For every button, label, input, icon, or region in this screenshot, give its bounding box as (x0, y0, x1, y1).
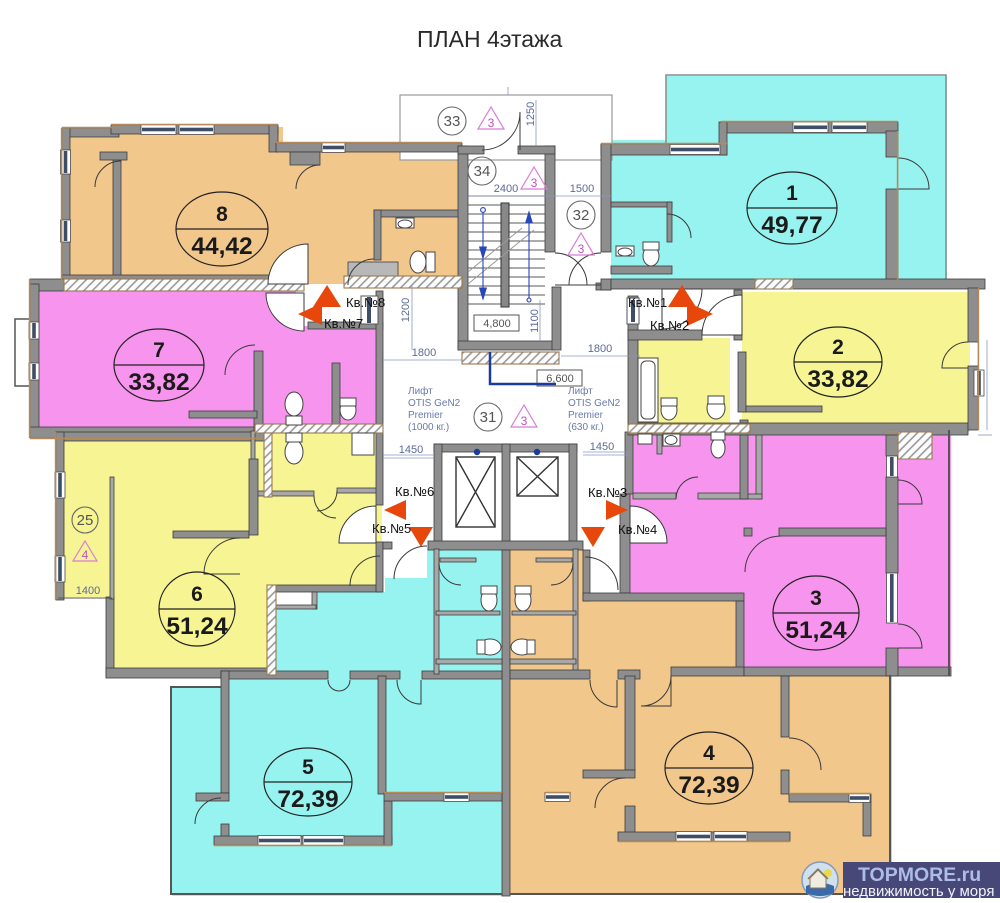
svg-text:1100: 1100 (529, 309, 541, 333)
svg-text:Premier: Premier (408, 410, 444, 421)
svg-text:72,39: 72,39 (678, 772, 739, 799)
svg-text:Premier: Premier (568, 410, 604, 421)
svg-text:OTIS GeN2: OTIS GeN2 (568, 398, 621, 409)
svg-text:Лифт: Лифт (568, 385, 593, 397)
svg-text:4,800: 4,800 (483, 318, 511, 330)
svg-text:1200: 1200 (400, 298, 412, 322)
svg-text:3: 3 (488, 116, 495, 130)
svg-text:2400: 2400 (494, 183, 518, 195)
svg-text:5: 5 (302, 756, 314, 779)
svg-text:Кв.№1: Кв.№1 (628, 295, 667, 310)
svg-text:Кв.№2: Кв.№2 (650, 318, 689, 333)
svg-text:72,39: 72,39 (277, 786, 338, 813)
svg-text:Кв.№6: Кв.№6 (395, 484, 434, 499)
svg-text:51,24: 51,24 (166, 613, 228, 640)
svg-text:34: 34 (474, 163, 491, 180)
svg-text:3: 3 (578, 242, 585, 256)
svg-text:(630 кг.): (630 кг.) (568, 422, 604, 433)
svg-text:33,82: 33,82 (128, 369, 189, 396)
svg-text:1450: 1450 (399, 444, 423, 456)
svg-text:6: 6 (191, 583, 203, 606)
svg-text:8: 8 (216, 203, 228, 226)
svg-text:1400: 1400 (76, 585, 100, 597)
svg-text:1: 1 (786, 182, 798, 205)
svg-text:1800: 1800 (588, 343, 612, 355)
svg-text:1800: 1800 (412, 347, 436, 359)
svg-text:51,24: 51,24 (785, 617, 847, 644)
svg-text:OTIS GeN2: OTIS GeN2 (408, 398, 461, 409)
svg-text:1450: 1450 (590, 441, 614, 453)
svg-text:1500: 1500 (570, 183, 594, 195)
svg-text:4: 4 (82, 548, 89, 562)
svg-text:Кв.№8: Кв.№8 (346, 295, 385, 310)
svg-text:44,42: 44,42 (191, 233, 252, 260)
svg-text:33,82: 33,82 (807, 366, 868, 393)
svg-text:Кв.№7: Кв.№7 (324, 316, 363, 331)
svg-text:Лифт: Лифт (408, 385, 433, 397)
svg-text:Кв.№5: Кв.№5 (372, 521, 411, 536)
svg-text:4: 4 (703, 742, 715, 765)
svg-text:3: 3 (810, 587, 822, 610)
svg-text:2: 2 (832, 336, 844, 359)
svg-text:49,77: 49,77 (761, 212, 822, 239)
svg-text:7: 7 (153, 339, 165, 362)
svg-text:Кв.№3: Кв.№3 (588, 485, 627, 500)
svg-text:Кв.№4: Кв.№4 (618, 522, 657, 537)
svg-text:32: 32 (573, 207, 590, 224)
svg-text:1250: 1250 (525, 102, 537, 126)
svg-text:33: 33 (444, 113, 461, 130)
svg-text:3: 3 (531, 176, 538, 190)
svg-text:3: 3 (521, 414, 528, 428)
svg-text:31: 31 (480, 409, 497, 426)
svg-text:25: 25 (77, 512, 94, 529)
svg-text:(1000 кг.): (1000 кг.) (408, 422, 449, 433)
svg-text:ПЛАН 4этажа: ПЛАН 4этажа (417, 26, 562, 52)
svg-text:недвижимость у моря: недвижимость у моря (843, 883, 994, 900)
